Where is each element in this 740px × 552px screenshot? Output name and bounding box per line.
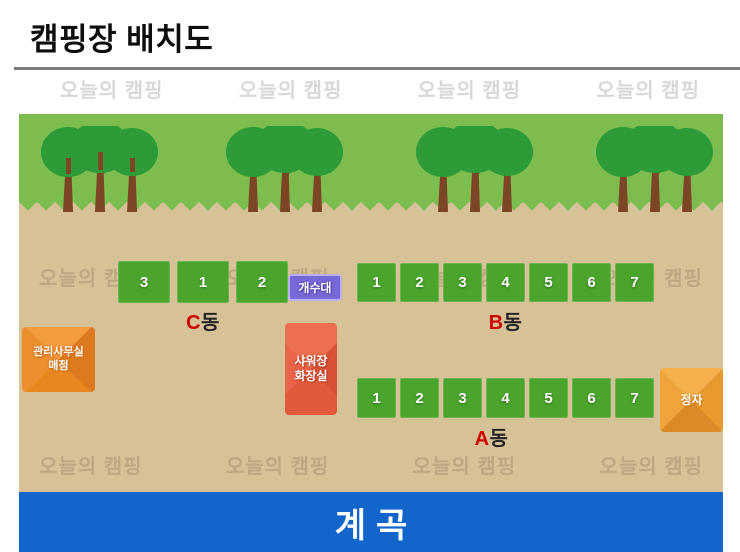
campsite-a-3: 3: [443, 378, 482, 418]
valley-label: 계곡: [325, 498, 418, 547]
pavilion-box: 정자: [660, 368, 723, 432]
shower-label-line1: 샤워장: [294, 354, 327, 369]
campsite-a-5: 5: [529, 378, 568, 418]
tree-cluster: [40, 126, 160, 212]
shower-label-line2: 화장실: [294, 369, 327, 384]
title-divider: [14, 67, 740, 70]
campsite-a-6: 6: [572, 378, 611, 418]
row-label-c: C동: [118, 306, 288, 335]
campsite-b-6: 6: [572, 263, 611, 302]
valley-strip: 계곡: [19, 492, 723, 552]
page-title: 캠핑장 배치도: [30, 14, 213, 59]
campground-map: 오늘의 캠핑 오늘의 캠핑 오늘의 캠핑 오늘의 캠핑 오늘의 캠핑 오늘의 캠…: [19, 114, 723, 552]
campsite-b-1: 1: [357, 263, 396, 302]
row-label-b: B동: [357, 306, 654, 335]
office-label-line1: 관리사무실: [33, 346, 84, 360]
campsite-b-4: 4: [486, 263, 525, 302]
office-label-line2: 매점: [48, 360, 68, 374]
row-label-a: A동: [343, 422, 640, 451]
tree-cluster: [225, 126, 345, 212]
campsite-b-3: 3: [443, 263, 482, 302]
campsite-c-3: 3: [118, 261, 170, 303]
campsite-c-2: 2: [236, 261, 288, 303]
watermark: 오늘의 캠핑: [599, 450, 703, 479]
slide: 캠핑장 배치도 오늘의 캠핑 오늘의 캠핑 오늘의 캠핑 오늘의 캠핑: [0, 0, 740, 552]
row-label-c-suffix: 동: [201, 312, 220, 334]
row-label-b-letter: B: [489, 312, 504, 334]
campsite-a-7: 7: [615, 378, 654, 418]
watermark: 오늘의 캠핑: [239, 74, 343, 103]
row-label-b-suffix: 동: [504, 312, 523, 334]
campsite-a-1: 1: [357, 378, 396, 418]
trees-icon: [415, 126, 535, 212]
watermark: 오늘의 캠핑: [413, 450, 517, 479]
campsite-b-2: 2: [400, 263, 439, 302]
campsite-c-1: 1: [177, 261, 229, 303]
watermark: 오늘의 캠핑: [596, 74, 700, 103]
watermark: 오늘의 캠핑: [60, 74, 164, 103]
trees-icon: [40, 126, 160, 212]
campsite-b-5: 5: [529, 263, 568, 302]
watermark-row-top: 오늘의 캠핑 오늘의 캠핑 오늘의 캠핑 오늘의 캠핑: [60, 74, 700, 103]
row-label-a-letter: A: [475, 428, 490, 450]
trees-icon: [595, 126, 715, 212]
shower-toilet-box: 샤워장 화장실: [285, 323, 337, 415]
tree-cluster: [595, 126, 715, 212]
tree-cluster: [415, 126, 535, 212]
watermark: 오늘의 캠핑: [418, 74, 522, 103]
watermark-row-bottom: 오늘의 캠핑 오늘의 캠핑 오늘의 캠핑 오늘의 캠핑: [39, 450, 703, 479]
campsite-a-2: 2: [400, 378, 439, 418]
row-label-a-suffix: 동: [490, 428, 509, 450]
watermark: 오늘의 캠핑: [39, 450, 143, 479]
pavilion-label: 정자: [680, 393, 702, 408]
row-label-c-letter: C: [186, 312, 201, 334]
watermark: 오늘의 캠핑: [226, 450, 330, 479]
sink-box: 개수대: [288, 274, 342, 301]
office-store-box: 관리사무실 매점: [22, 327, 95, 392]
campsite-a-4: 4: [486, 378, 525, 418]
trees-icon: [225, 126, 345, 212]
campsite-b-7: 7: [615, 263, 654, 302]
